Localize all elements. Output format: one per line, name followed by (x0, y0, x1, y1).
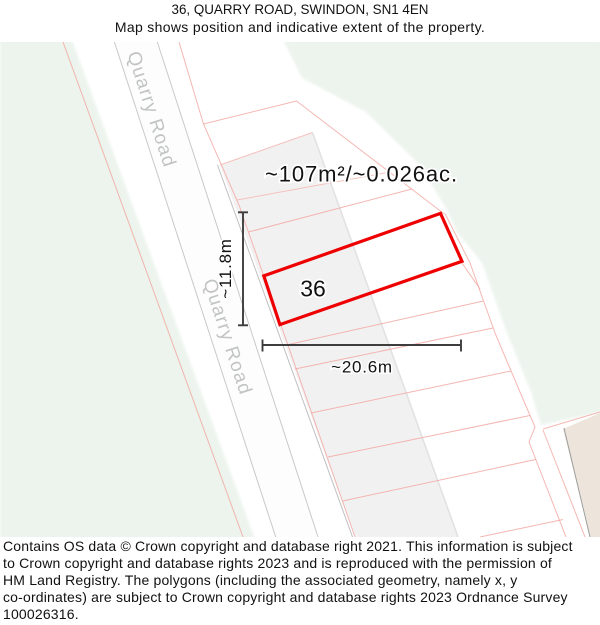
svg-text:~11.8m: ~11.8m (216, 238, 235, 298)
svg-text:~20.6m: ~20.6m (331, 357, 393, 376)
svg-text:~107m²/~0.026ac.: ~107m²/~0.026ac. (265, 162, 458, 187)
svg-text:36: 36 (300, 275, 326, 301)
